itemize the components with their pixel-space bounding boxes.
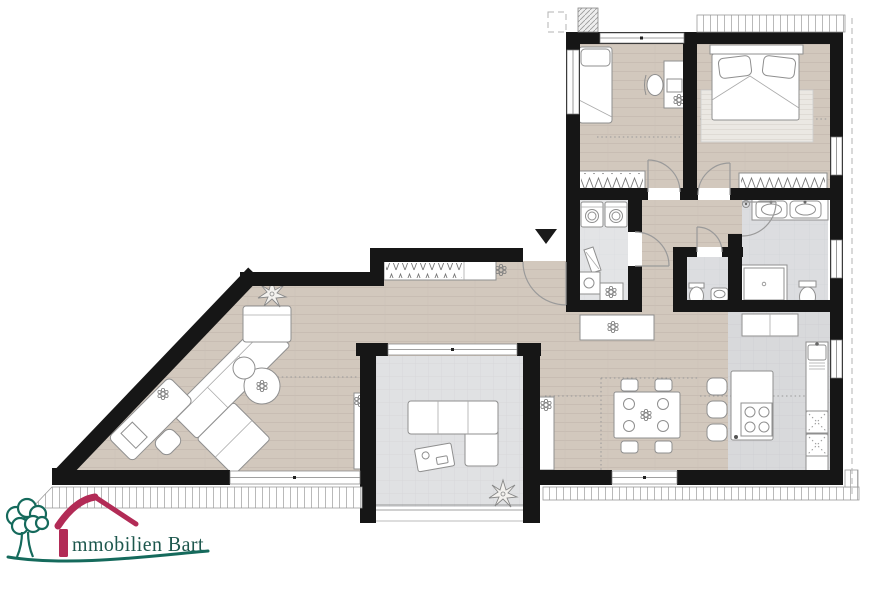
- terrace-railing: [376, 505, 523, 521]
- floor-plan-page: mmobilien Bart: [0, 0, 888, 600]
- dormer-eave: [697, 15, 845, 32]
- dryer: [605, 202, 627, 227]
- utility-south-wall: [566, 300, 642, 312]
- bedroom-south-wall: [566, 188, 648, 200]
- bedroom-south-wall: [680, 188, 698, 200]
- floor-plan-drawing: mmobilien Bart: [0, 0, 888, 600]
- window: [567, 50, 579, 114]
- pillow: [718, 55, 752, 79]
- south-wall-east: [538, 470, 612, 485]
- dining-chair: [655, 379, 672, 391]
- living-north-wall: [240, 272, 382, 286]
- dining-chair: [621, 441, 638, 453]
- bath-door-threshold: [728, 200, 742, 234]
- bath-south-wall: [673, 300, 830, 312]
- washer: [581, 202, 603, 227]
- window: [831, 340, 842, 378]
- kitchen-island: [731, 371, 773, 440]
- bedroom-divider-wall: [683, 44, 697, 188]
- vestibule-floor: [673, 200, 728, 247]
- pillow: [581, 49, 610, 66]
- window: [230, 471, 360, 484]
- bar-stool: [707, 378, 727, 395]
- south-east-eave: [543, 487, 859, 500]
- terrace-sliding-door: [388, 344, 517, 355]
- bedroom-south-wall: [730, 188, 830, 200]
- entrance-arrow-icon: [535, 229, 557, 244]
- wardrobe-hatch: [581, 173, 643, 188]
- south-wall-east: [677, 470, 837, 485]
- utility-east-wall: [628, 200, 642, 232]
- window: [600, 33, 684, 43]
- wc-north-wall: [673, 247, 697, 257]
- round-side-table-small: [233, 357, 255, 379]
- headboard: [710, 45, 803, 54]
- wall-step: [370, 248, 384, 286]
- entry-north-wall: [382, 248, 523, 262]
- toilet-tank: [799, 281, 816, 287]
- dining-table: [614, 392, 680, 438]
- bar-stool: [707, 424, 727, 441]
- window: [612, 471, 677, 484]
- south-wall-west: [54, 470, 230, 485]
- shelf: [600, 283, 623, 301]
- outdoor-sofa: [408, 401, 498, 434]
- bar-stool: [707, 401, 727, 418]
- sofa-end-seat: [243, 306, 291, 342]
- coat-wardrobe-hatch: [386, 263, 462, 278]
- island-faucet: [734, 435, 738, 439]
- shower: [741, 265, 787, 303]
- faucet: [804, 201, 807, 204]
- dining-chair: [655, 441, 672, 453]
- roof-edge-box: [548, 12, 566, 32]
- chimney: [578, 8, 598, 32]
- utility-sink: [578, 272, 600, 294]
- bedroom-chair: [647, 75, 663, 96]
- window: [831, 137, 842, 175]
- tree-icon: [7, 499, 48, 557]
- dining-chair: [621, 379, 638, 391]
- sideboard: [538, 397, 554, 470]
- wardrobe-hatch: [741, 175, 825, 189]
- window: [831, 240, 842, 278]
- pillow: [762, 55, 796, 79]
- corridor-floor: [642, 200, 673, 312]
- terrace-east-wall: [523, 343, 540, 523]
- logo-i-bar: [59, 529, 68, 557]
- sink-faucet: [815, 342, 819, 346]
